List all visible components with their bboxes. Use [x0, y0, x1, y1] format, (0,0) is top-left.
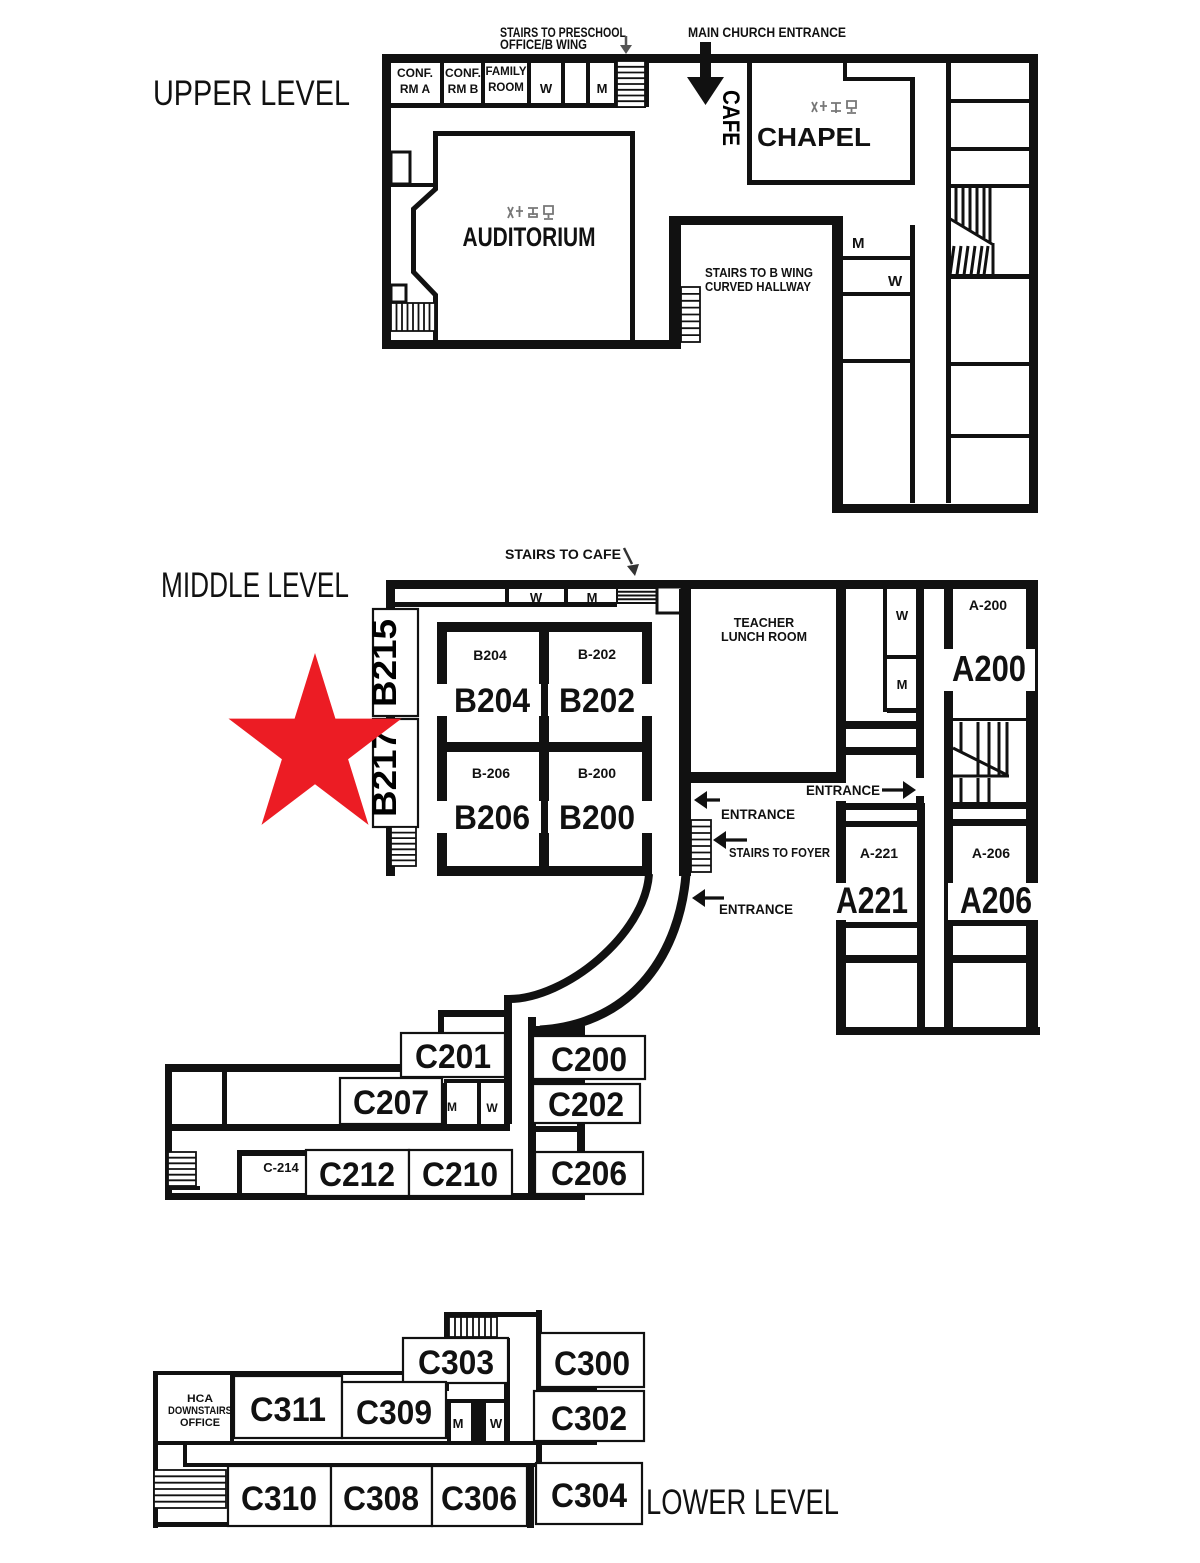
- svg-text:C308: C308: [343, 1480, 419, 1518]
- svg-text:ENTRANCE: ENTRANCE: [721, 807, 795, 822]
- svg-text:B202: B202: [559, 682, 635, 720]
- svg-text:C311: C311: [250, 1391, 326, 1429]
- svg-text:DOWNSTAIRS: DOWNSTAIRS: [168, 1405, 232, 1417]
- svg-text:ROOM: ROOM: [488, 82, 524, 94]
- svg-text:W: W: [490, 1416, 503, 1431]
- svg-text:B217: B217: [366, 729, 404, 817]
- svg-text:W: W: [540, 81, 553, 96]
- svg-text:CONF.: CONF.: [445, 66, 481, 80]
- svg-text:B204: B204: [454, 682, 530, 720]
- svg-text:LUNCH ROOM: LUNCH ROOM: [721, 630, 807, 644]
- svg-text:OFFICE: OFFICE: [180, 1417, 220, 1429]
- svg-text:B206: B206: [454, 799, 530, 837]
- svg-text:B215: B215: [366, 619, 404, 707]
- svg-text:A206: A206: [960, 880, 1032, 921]
- svg-text:C206: C206: [551, 1155, 627, 1193]
- svg-text:B204: B204: [473, 647, 507, 663]
- svg-text:M: M: [453, 1416, 464, 1431]
- svg-text:M: M: [852, 235, 865, 252]
- svg-text:B-206: B-206: [472, 765, 510, 781]
- svg-text:M: M: [597, 81, 608, 96]
- svg-text:M: M: [897, 677, 908, 692]
- svg-text:HCA: HCA: [187, 1393, 213, 1405]
- svg-text:W: W: [486, 1101, 498, 1115]
- svg-text:M: M: [587, 590, 598, 605]
- svg-text:C302: C302: [551, 1400, 627, 1438]
- svg-text:C-214: C-214: [263, 1160, 299, 1175]
- svg-text:CURVED HALLWAY: CURVED HALLWAY: [705, 279, 811, 294]
- svg-text:A200: A200: [952, 648, 1026, 689]
- svg-text:RM A: RM A: [400, 82, 431, 96]
- svg-text:LOWER LEVEL: LOWER LEVEL: [646, 1483, 839, 1522]
- svg-text:C201: C201: [415, 1038, 491, 1076]
- svg-text:C202: C202: [548, 1086, 624, 1124]
- svg-text:W: W: [888, 273, 903, 290]
- svg-text:W: W: [530, 590, 543, 605]
- svg-text:A-206: A-206: [972, 845, 1010, 861]
- svg-text:AUDITORIUM: AUDITORIUM: [463, 222, 596, 252]
- svg-text:C309: C309: [356, 1394, 432, 1432]
- svg-text:C310: C310: [241, 1480, 317, 1518]
- svg-text:CAFE: CAFE: [717, 90, 744, 146]
- svg-text:A221: A221: [836, 880, 908, 921]
- svg-text:FAMILY: FAMILY: [485, 66, 526, 78]
- svg-text:UPPER LEVEL: UPPER LEVEL: [153, 74, 350, 113]
- svg-text:STAIRS TO FOYER: STAIRS TO FOYER: [729, 845, 831, 860]
- svg-text:B-200: B-200: [578, 765, 616, 781]
- svg-text:OFFICE/B WING: OFFICE/B WING: [500, 37, 587, 52]
- svg-text:W: W: [896, 608, 909, 623]
- svg-text:C304: C304: [551, 1477, 627, 1515]
- svg-text:C300: C300: [554, 1345, 630, 1383]
- svg-text:A-221: A-221: [860, 845, 898, 861]
- svg-text:B-202: B-202: [578, 646, 616, 662]
- svg-text:CONF.: CONF.: [397, 66, 433, 80]
- svg-text:RM B: RM B: [448, 82, 479, 96]
- svg-text:C200: C200: [551, 1041, 627, 1079]
- svg-text:TEACHER: TEACHER: [734, 616, 794, 630]
- svg-text:STAIRS TO CAFE: STAIRS TO CAFE: [505, 547, 621, 562]
- svg-text:STAIRS TO B WING: STAIRS TO B WING: [705, 265, 813, 280]
- svg-text:C212: C212: [319, 1156, 395, 1194]
- svg-text:C303: C303: [418, 1344, 494, 1382]
- svg-text:CHAPEL: CHAPEL: [757, 122, 871, 152]
- svg-text:M: M: [447, 1100, 457, 1114]
- svg-text:MAIN CHURCH ENTRANCE: MAIN CHURCH ENTRANCE: [688, 25, 846, 40]
- svg-text:ENTRANCE: ENTRANCE: [719, 902, 793, 917]
- svg-text:MIDDLE LEVEL: MIDDLE LEVEL: [161, 566, 349, 605]
- svg-text:C306: C306: [441, 1480, 517, 1518]
- svg-text:C207: C207: [353, 1084, 429, 1122]
- svg-text:ENTRANCE: ENTRANCE: [806, 783, 880, 798]
- svg-text:C210: C210: [422, 1156, 498, 1194]
- svg-text:A-200: A-200: [969, 597, 1007, 613]
- svg-text:B200: B200: [559, 799, 635, 837]
